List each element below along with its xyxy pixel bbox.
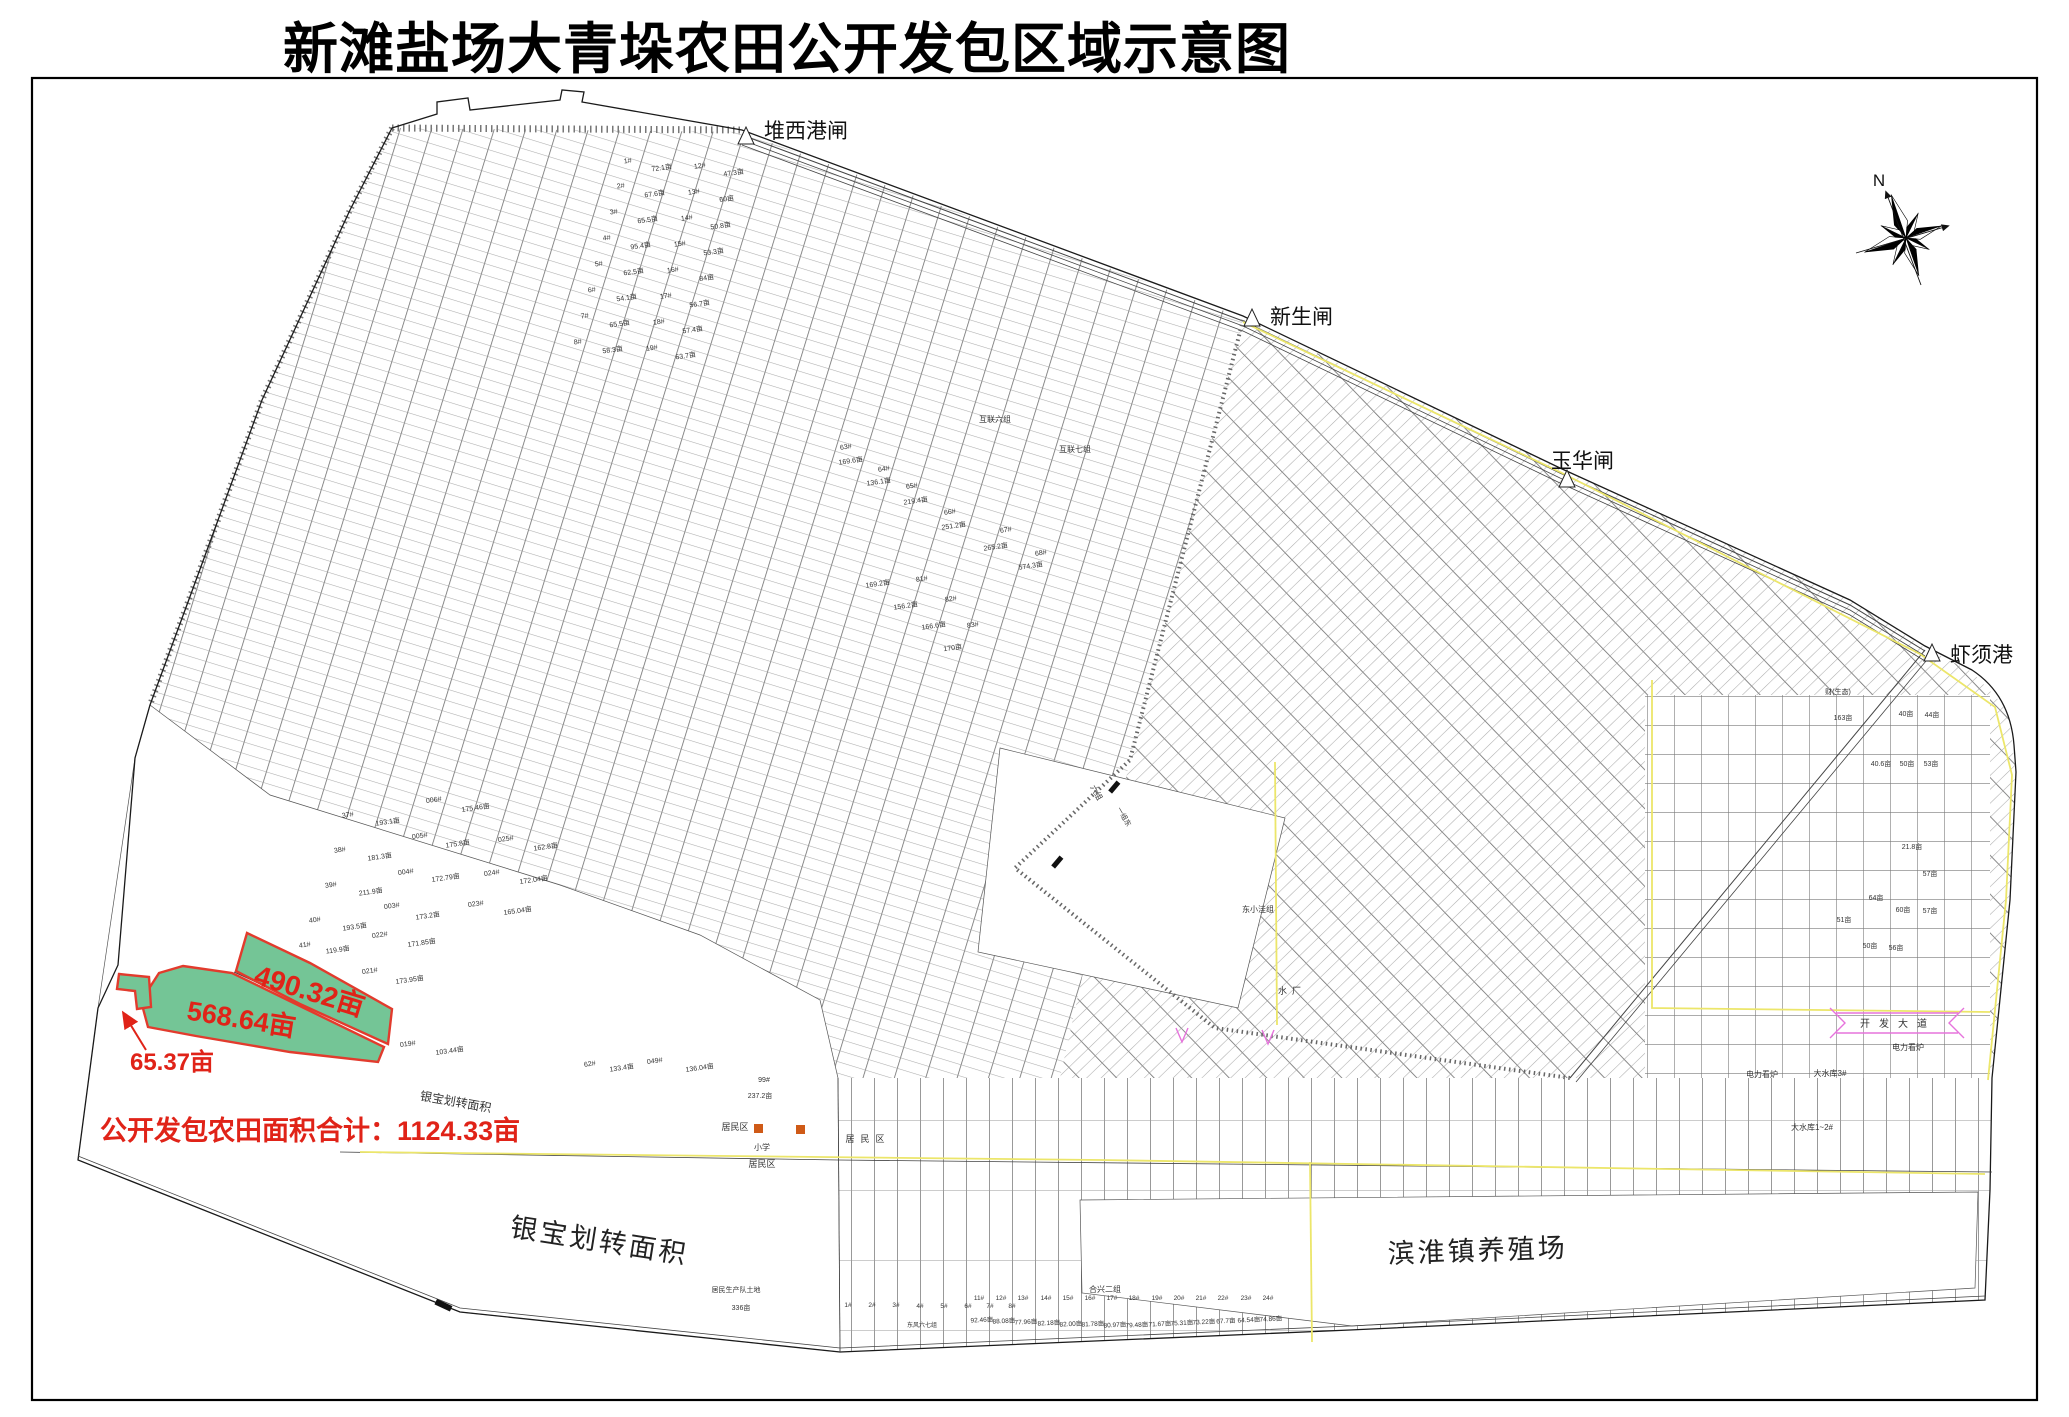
highlight-area-label: 65.37亩 bbox=[130, 1048, 214, 1076]
parcel-label: 53亩 bbox=[1924, 759, 1939, 768]
parcel-label: 13# bbox=[1018, 1295, 1029, 1302]
gate-label: 堆西港闸 bbox=[764, 120, 848, 143]
parcel-label: 336亩 bbox=[732, 1303, 751, 1312]
parcel-label: 合兴二组 bbox=[1089, 1284, 1121, 1294]
parcel-label: 居民生产队土地 bbox=[712, 1285, 761, 1294]
parcel-label: 东风六七组 bbox=[907, 1321, 937, 1329]
parcel-label: 7# bbox=[580, 312, 589, 320]
parcel-label: 50亩 bbox=[1900, 759, 1915, 768]
parcel-label: 1# bbox=[623, 157, 632, 165]
parcel-label: 24# bbox=[1263, 1295, 1274, 1302]
parcel-label: 40亩 bbox=[1899, 709, 1914, 718]
map-canvas: 堆西港闸新生闸玉华闸虾须港 490.32亩568.64亩65.37亩公开发包农田… bbox=[0, 0, 2069, 1417]
building-symbol bbox=[796, 1125, 805, 1134]
parcel-label: 17# bbox=[1107, 1295, 1118, 1302]
parcel-label: 大水库3# bbox=[1814, 1068, 1847, 1078]
parcel-label: 互联六组 bbox=[979, 414, 1011, 424]
parcel-label: 7# bbox=[986, 1303, 994, 1310]
parcel-label: 57亩 bbox=[1923, 906, 1938, 915]
parcel-label: 8# bbox=[1008, 1303, 1016, 1310]
parcel-label: 21# bbox=[1196, 1295, 1207, 1302]
parcel-label: 6# bbox=[964, 1303, 972, 1310]
parcel-label: 互联七组 bbox=[1059, 444, 1091, 454]
parcel-label: 6# bbox=[587, 286, 596, 294]
parcel-label: 居民区 bbox=[721, 1122, 748, 1132]
map-page: 新滩盐场大青垛农田公开发包区域示意图 bbox=[0, 0, 2069, 1417]
parcel-label: 3# bbox=[609, 208, 618, 216]
parcel-label: 50亩 bbox=[1863, 941, 1878, 950]
parcel-label: 15# bbox=[1063, 1295, 1074, 1302]
parcel-label: 19# bbox=[1152, 1295, 1163, 1302]
parcel-label: 大水库1~2# bbox=[1791, 1122, 1834, 1132]
parcel-label: 14# bbox=[1041, 1295, 1052, 1302]
compass-north-label: N bbox=[1873, 171, 1885, 190]
parcel-label: 60亩 bbox=[1896, 905, 1911, 914]
parcel-label: 2# bbox=[868, 1302, 876, 1309]
parcel-label: 电力看炉 bbox=[1892, 1042, 1924, 1052]
parcel-label: 99# bbox=[758, 1077, 770, 1084]
total-area-label: 公开发包农田面积合计：1124.33亩 bbox=[100, 1115, 520, 1146]
parcel-label: 56亩 bbox=[1889, 943, 1904, 952]
right-grid-texture bbox=[1645, 695, 1990, 1078]
parcel-label: 4# bbox=[916, 1303, 924, 1310]
parcel-label: 居民区 bbox=[748, 1159, 775, 1169]
parcel-label: 20# bbox=[1174, 1295, 1185, 1302]
gate-label: 虾须港 bbox=[1950, 644, 2013, 667]
parcel-label: 44亩 bbox=[1925, 710, 1940, 719]
parcel-label: 163亩 bbox=[1834, 713, 1853, 722]
parcel-label: 57亩 bbox=[1923, 869, 1938, 878]
parcel-label: 16# bbox=[1085, 1295, 1096, 1302]
parcel-label: 4# bbox=[602, 234, 611, 242]
parcel-label: 电力看炉 bbox=[1746, 1069, 1778, 1079]
parcel-label: 财(生态) bbox=[1825, 687, 1851, 696]
parcel-label: 小学 bbox=[754, 1142, 770, 1152]
parcel-label: 12# bbox=[996, 1295, 1007, 1302]
region-label: 滨淮镇养殖场 bbox=[1387, 1233, 1568, 1269]
building-symbol-school bbox=[754, 1124, 763, 1133]
parcel-label: 水厂 bbox=[1278, 985, 1306, 996]
gate-label: 玉华闸 bbox=[1551, 450, 1614, 473]
parcel-label: 3# bbox=[892, 1302, 900, 1309]
parcel-label: 22# bbox=[1218, 1295, 1229, 1302]
parcel-label: 5# bbox=[594, 260, 603, 268]
gate-label: 新生闸 bbox=[1270, 306, 1333, 329]
parcel-label: 40.6亩 bbox=[1871, 759, 1892, 768]
parcel-label: 18# bbox=[1129, 1295, 1140, 1302]
parcel-label: 8# bbox=[573, 338, 582, 346]
parcel-label: 21.8亩 bbox=[1902, 842, 1923, 851]
parcel-label: 5# bbox=[940, 1303, 948, 1310]
parcel-label: 237.2亩 bbox=[748, 1091, 773, 1100]
parcel-label: 居民区 bbox=[845, 1134, 890, 1144]
parcel-label: 51亩 bbox=[1837, 915, 1852, 924]
parcel-label: 东小洼组 bbox=[1242, 904, 1274, 914]
parcel-label: 2# bbox=[616, 182, 625, 190]
parcel-label: 64亩 bbox=[1869, 893, 1884, 902]
parcel-label: 11# bbox=[974, 1295, 985, 1302]
parcel-label: 1# bbox=[844, 1302, 852, 1309]
parcel-label: 开发大道 bbox=[1860, 1017, 1936, 1030]
parcel-label: 23# bbox=[1241, 1295, 1252, 1302]
